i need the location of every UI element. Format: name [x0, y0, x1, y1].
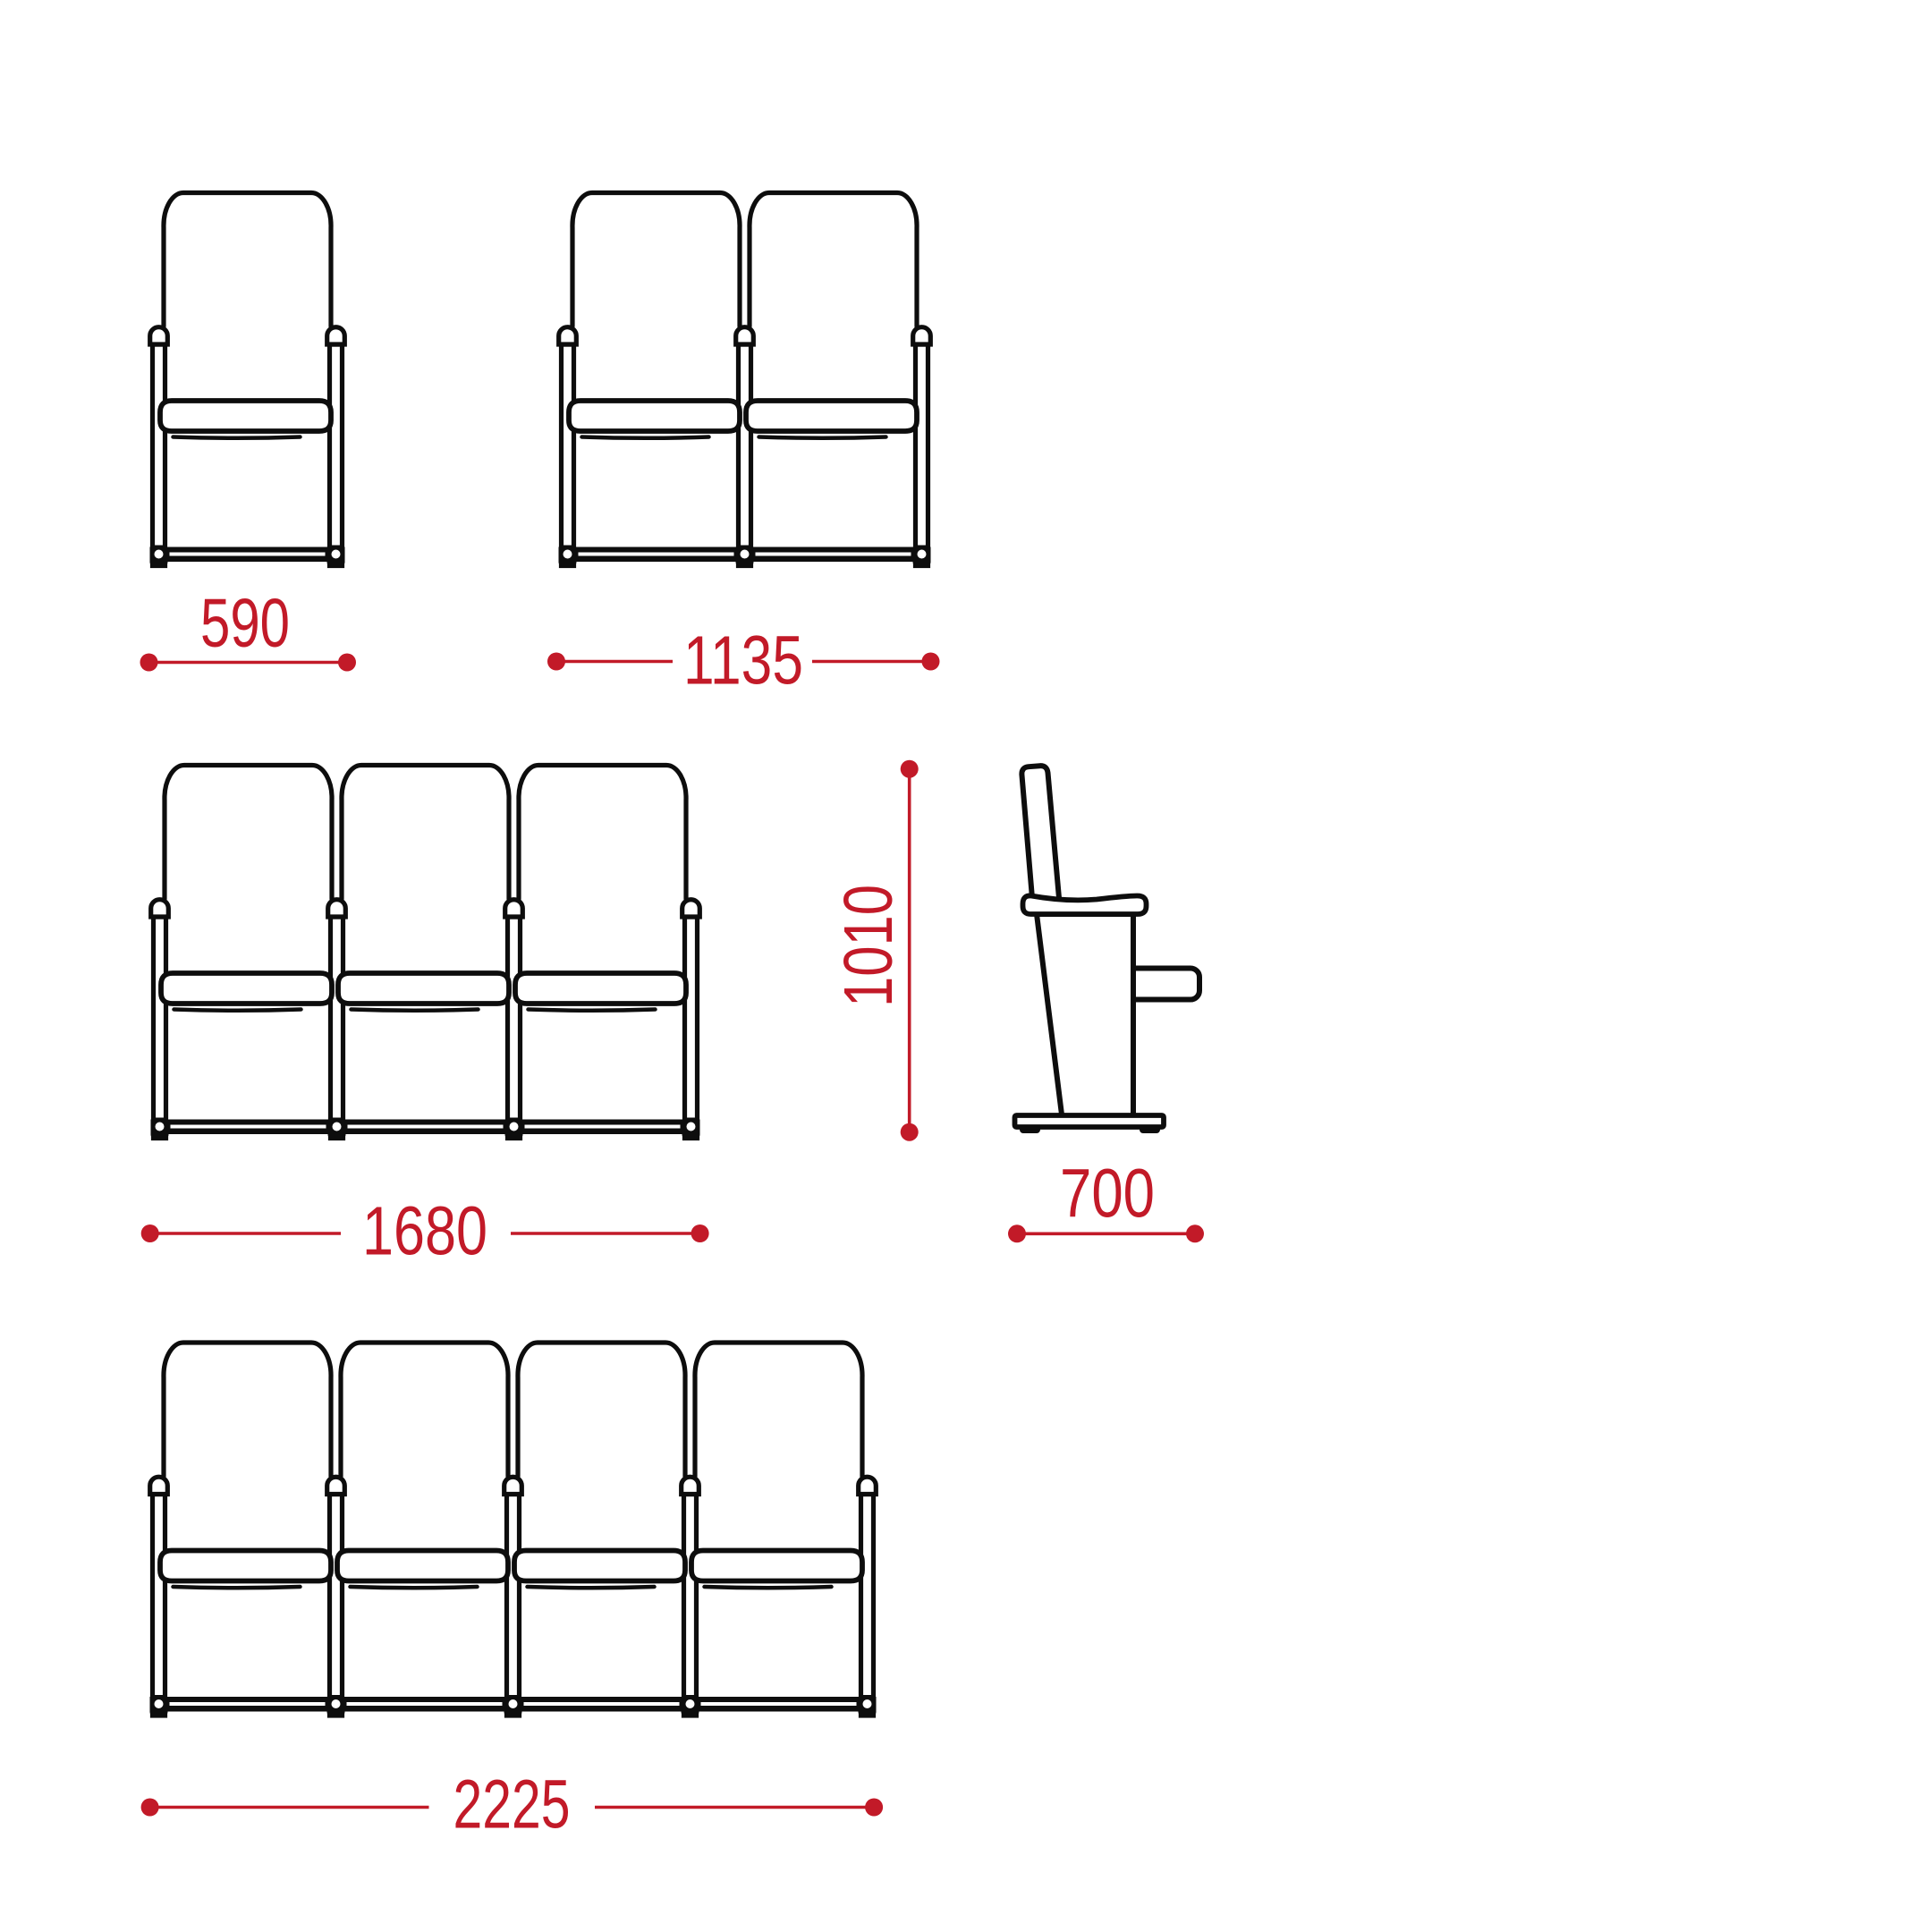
svg-text:2225: 2225: [453, 1767, 571, 1843]
svg-text:1010: 1010: [830, 885, 907, 1007]
svg-text:700: 700: [1060, 1156, 1155, 1233]
svg-text:1135: 1135: [683, 623, 803, 699]
svg-text:1680: 1680: [362, 1193, 487, 1270]
svg-text:590: 590: [200, 585, 290, 662]
